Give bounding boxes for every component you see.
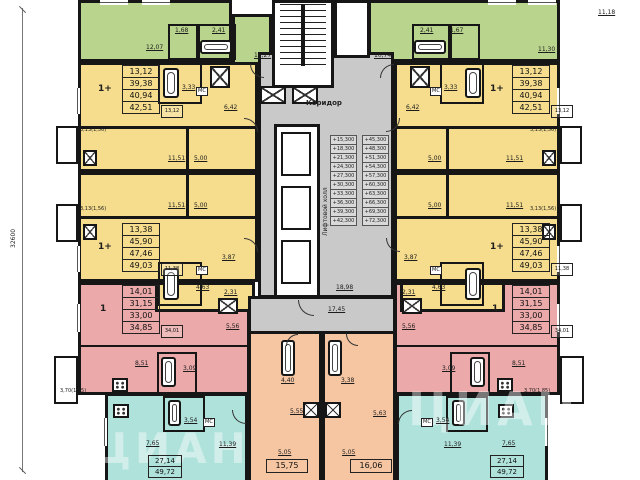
elevator-car-1: [281, 132, 311, 176]
room-area-label: 4,63: [432, 284, 445, 291]
partition: [446, 172, 449, 218]
partition: [394, 216, 560, 219]
room-area-label: 3,13(1,56): [80, 206, 106, 213]
stair-lobby: [334, 0, 370, 58]
room-area-label: 2,41: [420, 27, 433, 34]
bathtub-icon: [414, 40, 446, 54]
room-area-label: 6,42: [224, 104, 237, 111]
room-area-label: 11,30: [538, 46, 555, 53]
window: [142, 0, 170, 5]
stamp-row-value: 34,85: [512, 321, 550, 334]
room-area-label: 3,38: [341, 377, 354, 384]
room-area-label: 3,13(1,56): [530, 206, 556, 213]
room-area-label: 5,00: [428, 202, 441, 209]
bathtub-icon: [168, 400, 181, 426]
partition: [394, 345, 560, 347]
room-area-label: 11,51: [168, 202, 185, 209]
stamp-row-value: 34,85: [122, 321, 160, 334]
window: [75, 304, 80, 332]
area-stamp: 13,3845,9047,4649,03: [122, 224, 160, 272]
bathtub-icon: [328, 340, 342, 376]
room-area-label: 6,42: [406, 104, 419, 111]
room-area-label: 3,70(1,85): [60, 388, 86, 395]
utility-label: МС: [430, 266, 442, 275]
room-area-label: 1,67: [450, 27, 463, 34]
stove-icon: [113, 404, 129, 418]
room-area-label: 2,41: [212, 27, 225, 34]
room-area-label: 3,87: [404, 254, 417, 261]
room-area-label: 11,39: [219, 441, 236, 448]
dimension-line: [22, 8, 23, 472]
bathtub-icon: [470, 357, 485, 387]
room-area-label: 2,31: [402, 289, 415, 296]
elevator-car-3: [281, 240, 311, 284]
closet-icon: [210, 66, 230, 88]
stamp-extra-value: 11,38: [161, 263, 183, 276]
room-area-label: 5,00: [428, 155, 441, 162]
area-stamp: 13,3845,9047,4649,03: [512, 224, 550, 272]
stamp-row-value: 49,72: [490, 466, 524, 478]
area-stamp: 13,1239,3840,9442,51: [122, 66, 160, 114]
closet-icon: [410, 66, 430, 88]
room-area-label: 8,51: [135, 360, 148, 367]
stamp-row-value: 49,03: [512, 259, 550, 272]
balcony: [56, 204, 78, 242]
area-stamp: 27,1449,72: [490, 456, 524, 478]
bathtub-icon: [163, 68, 179, 98]
window: [102, 418, 107, 446]
window: [528, 0, 556, 5]
utility-label: МС: [430, 87, 442, 96]
stamp-extra-value: 11,38: [551, 263, 573, 276]
bathtub-icon: [465, 68, 481, 98]
elevation-table: +15,300+45,300+18,300+48,300+21,300+51,3…: [330, 136, 389, 226]
room-area-label: 11,51: [168, 155, 185, 162]
room-area-label: 5,05: [278, 449, 291, 456]
elevation-value: +42,300: [330, 216, 357, 226]
room-area-label: 8,51: [512, 360, 525, 367]
utility-label: МС: [421, 418, 433, 427]
room-area-label: 3,13(1,56): [80, 127, 106, 134]
bathtub-icon: [465, 268, 481, 300]
utility-label: МС: [196, 87, 208, 96]
lobby-area-label: 18,98: [336, 284, 353, 291]
room-area-label: 3,09: [442, 365, 455, 372]
stove-icon: [112, 378, 128, 392]
stove-icon: [497, 378, 513, 392]
room-area-label: 3,70(1,85): [524, 388, 550, 395]
floor-plan-canvas: 32600 Коридор Лифтовой холл 18,98 17,45 …: [0, 0, 640, 480]
stamp-row-value: 42,51: [122, 101, 160, 114]
partition: [78, 216, 258, 219]
apartment-type-label: 1: [100, 306, 106, 313]
stamp-extra-value: 13,12: [551, 105, 573, 118]
balcony: [560, 356, 584, 404]
window: [545, 418, 550, 446]
utility-label: МС: [203, 418, 215, 427]
kitchen-unit-icon: [325, 402, 341, 418]
elevation-value: +72,300: [362, 216, 389, 226]
partition: [78, 345, 250, 347]
apartment-type-label: 1: [492, 306, 498, 313]
balcony-door-icon: [83, 224, 97, 240]
room-area-label: 3,87: [222, 254, 235, 261]
utility-label: МС: [196, 266, 208, 275]
closet-icon: [402, 298, 422, 314]
room-area-label: 3,54: [184, 417, 197, 424]
window: [75, 88, 80, 114]
stamp-row-value: 15,75: [266, 459, 308, 473]
room-area-label: 3,09: [183, 365, 196, 372]
partition: [186, 126, 189, 172]
room-area-label: 10,74: [374, 52, 391, 59]
room-area-label: 5,56: [402, 323, 415, 330]
room-area-label: 5,56: [226, 323, 239, 330]
corridor-label: Коридор: [306, 100, 342, 107]
room-area-label: 11,18: [598, 9, 615, 16]
lift-hall-label: Лифтовой холл: [322, 187, 329, 236]
balcony-door-icon: [542, 150, 556, 166]
room-area-label: 4,40: [281, 377, 294, 384]
stamp-extra-value: 13,12: [161, 105, 183, 118]
room-area-label: 7,65: [502, 440, 515, 447]
corridor-lower: [248, 296, 396, 334]
area-stamp: 15,75: [266, 460, 308, 473]
stamp-extra-value: 34,01: [551, 325, 573, 338]
room-area-label: 12,07: [146, 44, 163, 51]
room-area-label: 5,00: [194, 155, 207, 162]
elevator-car-2: [281, 186, 311, 230]
partition: [446, 126, 449, 172]
apartment-type-label: 1+: [98, 86, 112, 93]
bathtub-icon: [200, 40, 232, 54]
vent-shaft-left: [260, 86, 286, 104]
balcony: [56, 126, 78, 164]
room-area-label: 1,68: [175, 27, 188, 34]
area-stamp: 13,1239,3840,9442,51: [512, 66, 550, 114]
partition: [186, 172, 189, 218]
room-area-label: 7,65: [146, 440, 159, 447]
room-area-label: 5,05: [342, 449, 355, 456]
staircase-divider: [301, 4, 305, 66]
room-area-label: 4,63: [196, 284, 209, 291]
room-area-label: 5,63: [373, 410, 386, 417]
stamp-row-value: 16,06: [350, 459, 392, 473]
dimension-label: 32600: [10, 229, 17, 248]
balcony: [560, 126, 582, 164]
balcony: [560, 204, 582, 242]
corridor-area-label: 17,45: [328, 306, 345, 313]
apartment-type-label: 1+: [98, 244, 112, 251]
apartment-type-label: 1+: [490, 86, 504, 93]
stamp-row-value: 42,51: [512, 101, 550, 114]
room-area-label: 5,00: [194, 202, 207, 209]
area-stamp: 14,0131,1533,0034,85: [122, 286, 160, 334]
room-area-label: 11,39: [444, 441, 461, 448]
room-area-label: 3,33: [182, 84, 195, 91]
stove-icon: [498, 404, 514, 418]
room-area-label: 5,55: [290, 408, 303, 415]
stamp-row-value: 49,03: [122, 259, 160, 272]
room-area-label: 11,51: [506, 202, 523, 209]
area-stamp: 27,1449,72: [148, 456, 182, 478]
closet-icon: [218, 298, 238, 314]
apartment-type-label: 1+: [490, 244, 504, 251]
room-area-label: 2,31: [224, 289, 237, 296]
room-area-label: 11,51: [506, 155, 523, 162]
balcony-door-icon: [83, 150, 97, 166]
window: [100, 0, 128, 5]
kitchen-unit-icon: [303, 402, 319, 418]
area-stamp: 16,06: [350, 460, 392, 473]
room-area-label: 3,33: [444, 84, 457, 91]
stamp-row-value: 49,72: [148, 466, 182, 478]
area-stamp: 14,0131,1533,0034,85: [512, 286, 550, 334]
room-area-label: 11,27: [254, 52, 271, 59]
window: [75, 246, 80, 272]
stamp-extra-value: 34,01: [161, 325, 183, 338]
room-area-label: 3,54: [436, 417, 449, 424]
bathtub-icon: [452, 400, 465, 426]
balcony: [54, 356, 78, 404]
bathtub-icon: [161, 357, 176, 387]
room-area-label: 3,13(1,56): [530, 127, 556, 134]
window: [488, 0, 516, 5]
